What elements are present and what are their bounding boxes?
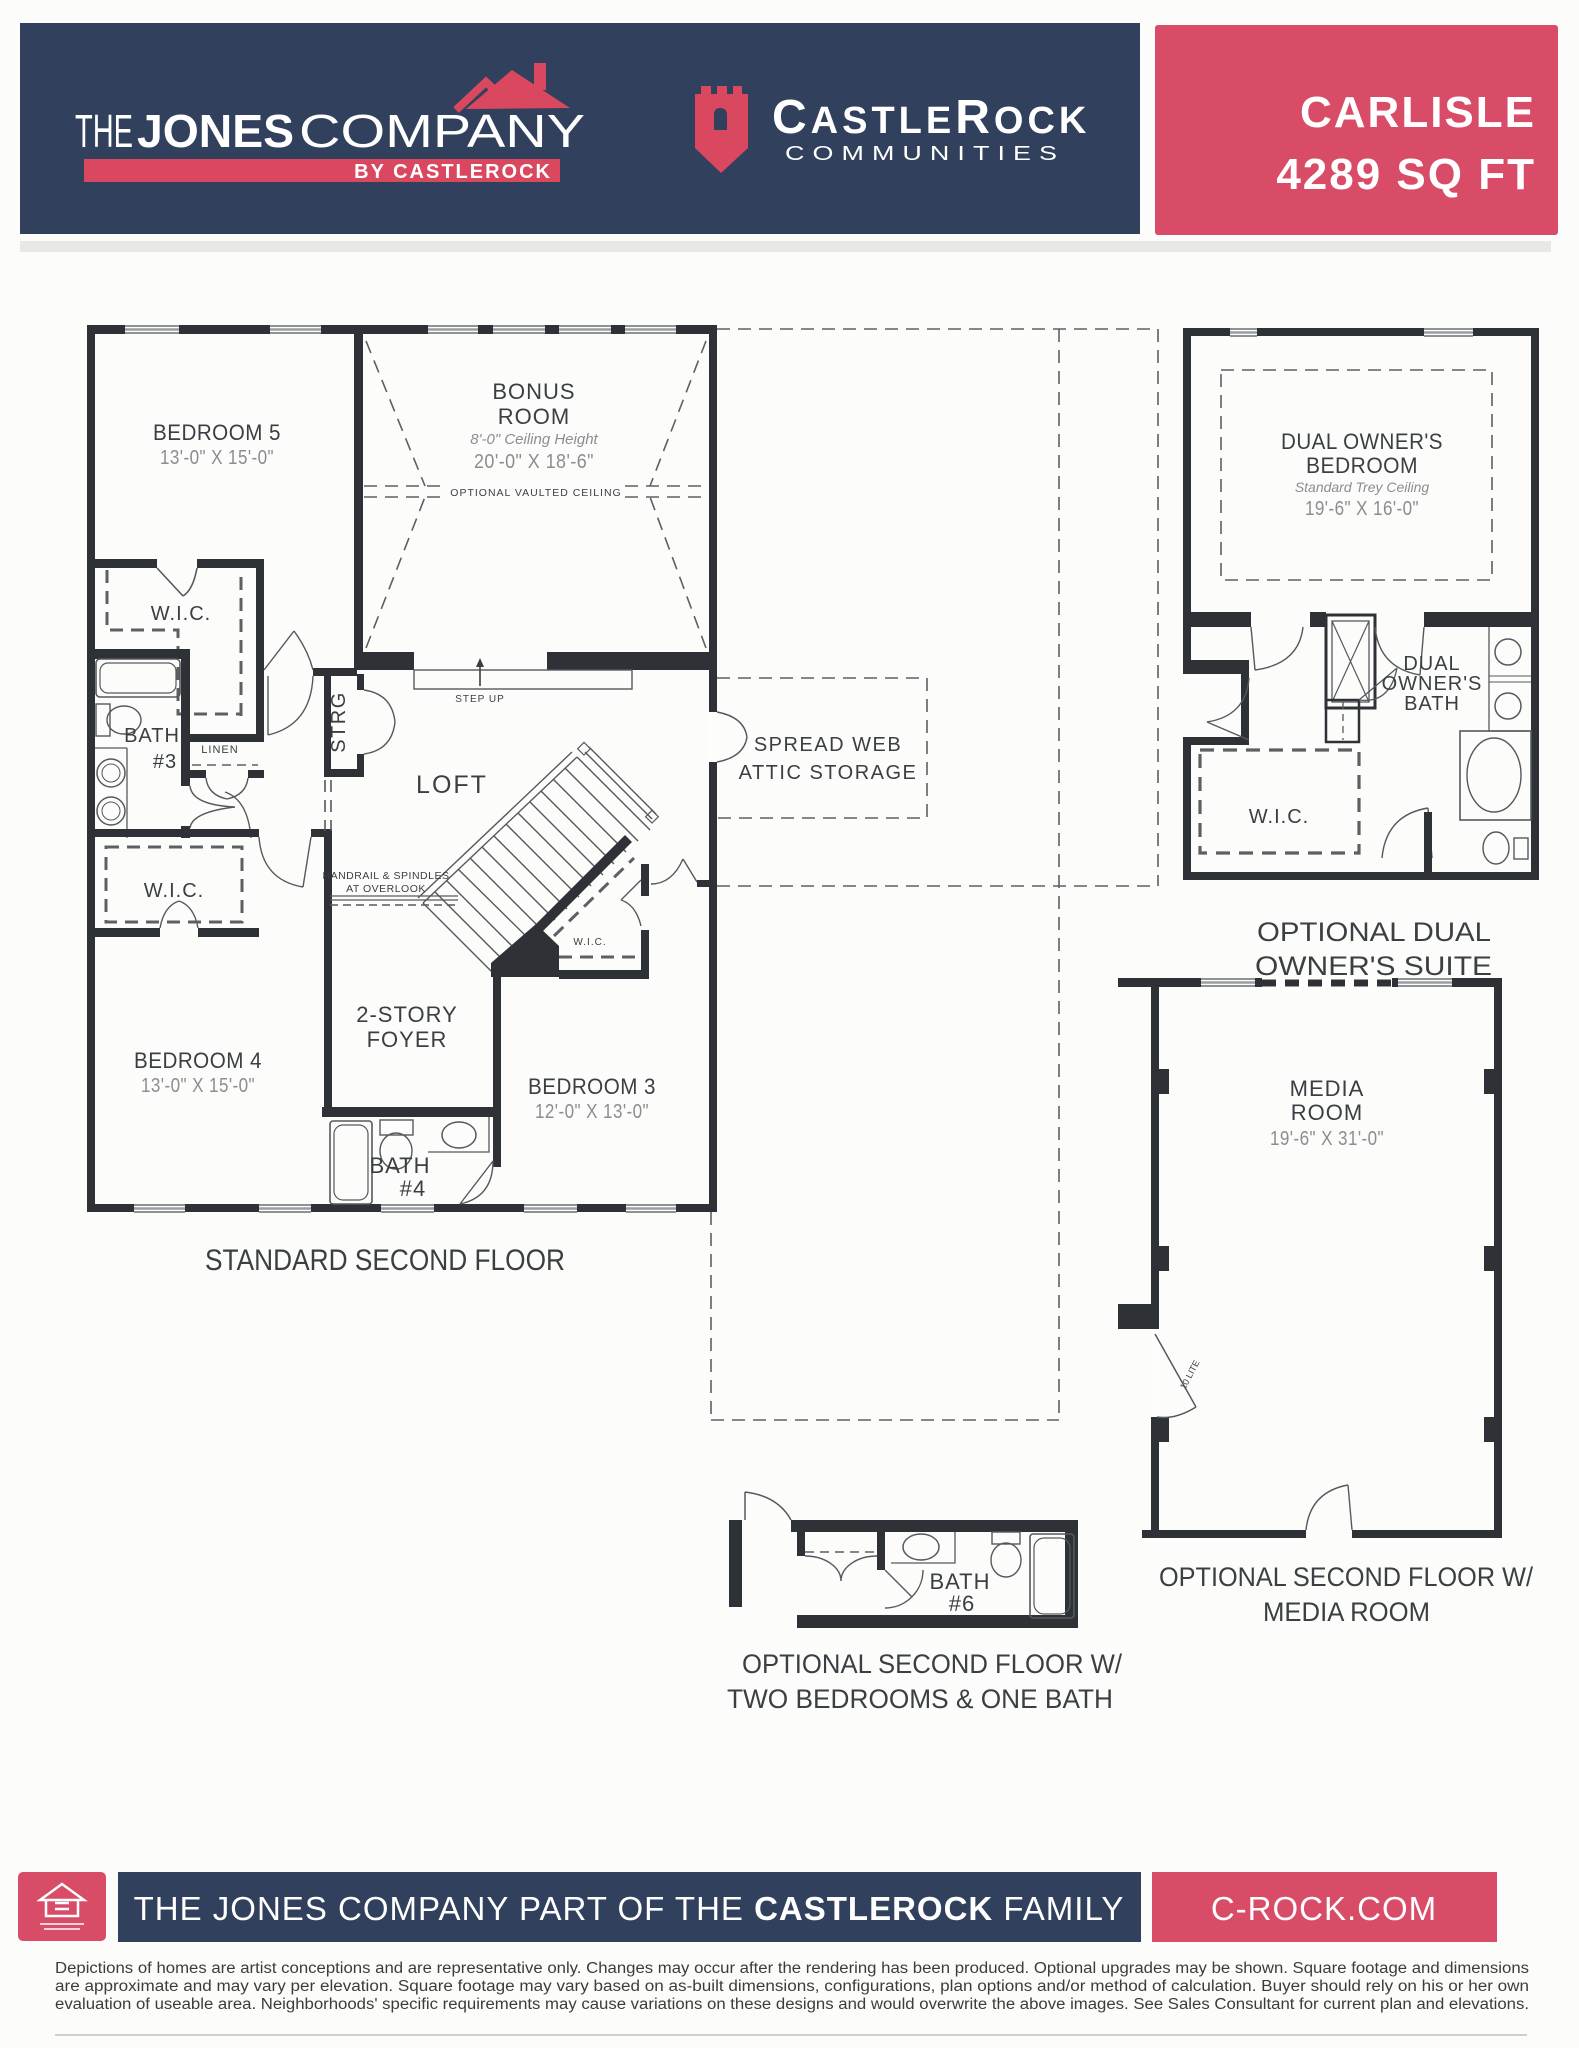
svg-text:are approximate and may vary p: are approximate and may vary per elevati… [55, 1978, 1529, 1995]
svg-text:BY CASTLEROCK: BY CASTLEROCK [354, 161, 552, 183]
svg-text:12'-0" X 13'-0": 12'-0" X 13'-0" [535, 1101, 649, 1123]
svg-text:STANDARD SECOND FLOOR: STANDARD SECOND FLOOR [205, 1244, 565, 1277]
svg-text:BEDROOM 5: BEDROOM 5 [153, 420, 281, 445]
svg-text:W.I.C.: W.I.C. [1249, 806, 1309, 828]
svg-text:BATH: BATH [369, 1153, 430, 1178]
svg-text:W.I.C.: W.I.C. [151, 603, 211, 625]
svg-text:BEDROOM 3: BEDROOM 3 [528, 1074, 656, 1099]
svg-text:2-STORY: 2-STORY [356, 1002, 458, 1027]
svg-text:evaluation of useable area. Ne: evaluation of useable area. Neighborhood… [55, 1996, 1529, 2013]
svg-text:#4: #4 [400, 1176, 426, 1201]
svg-text:#3: #3 [153, 751, 177, 773]
svg-text:ATTIC STORAGE: ATTIC STORAGE [739, 762, 918, 784]
svg-text:DUAL OWNER'S: DUAL OWNER'S [1281, 429, 1443, 454]
svg-text:BATH: BATH [124, 725, 180, 747]
svg-text:OPTIONAL SECOND FLOOR W/: OPTIONAL SECOND FLOOR W/ [742, 1649, 1122, 1679]
svg-text:19'-6" X 31'-0": 19'-6" X 31'-0" [1270, 1128, 1384, 1150]
svg-text:#6: #6 [949, 1591, 975, 1616]
svg-text:AT OVERLOOK: AT OVERLOOK [346, 883, 426, 895]
svg-text:HANDRAIL & SPINDLES: HANDRAIL & SPINDLES [323, 870, 450, 882]
svg-text:COMMUNITIES: COMMUNITIES [785, 143, 1065, 165]
svg-text:BATH: BATH [1404, 693, 1460, 715]
svg-text:20'-0" X 18'-6": 20'-0" X 18'-6" [474, 451, 594, 473]
svg-text:4289 SQ FT: 4289 SQ FT [1276, 150, 1536, 199]
svg-text:OPTIONAL DUAL: OPTIONAL DUAL [1257, 917, 1491, 947]
svg-text:ROOM: ROOM [1291, 1100, 1363, 1125]
svg-text:BEDROOM: BEDROOM [1306, 453, 1418, 478]
svg-text:STRG: STRG [328, 691, 350, 753]
svg-text:SPREAD WEB: SPREAD WEB [754, 734, 902, 756]
svg-text:OWNER'S: OWNER'S [1382, 673, 1483, 695]
svg-text:10 LITE: 10 LITE [1178, 1358, 1202, 1391]
svg-text:TWO BEDROOMS & ONE BATH: TWO BEDROOMS & ONE BATH [727, 1684, 1113, 1714]
svg-text:BEDROOM 4: BEDROOM 4 [134, 1048, 262, 1073]
svg-text:19'-6" X 16'-0": 19'-6" X 16'-0" [1305, 498, 1419, 520]
svg-text:ROOM: ROOM [498, 404, 570, 429]
svg-text:CARLISLE: CARLISLE [1300, 88, 1536, 137]
svg-text:OPTIONAL VAULTED CEILING: OPTIONAL VAULTED CEILING [450, 487, 621, 499]
svg-text:Standard Trey Ceiling: Standard Trey Ceiling [1295, 479, 1430, 495]
svg-text:COMPANY: COMPANY [299, 105, 585, 157]
svg-text:FOYER: FOYER [367, 1027, 448, 1052]
svg-text:W.I.C.: W.I.C. [144, 880, 204, 902]
svg-text:Depictions of homes are artist: Depictions of homes are artist conceptio… [55, 1960, 1529, 1977]
svg-text:DUAL: DUAL [1403, 653, 1460, 675]
svg-text:LINEN: LINEN [201, 744, 238, 756]
svg-text:LOFT: LOFT [416, 771, 488, 799]
svg-text:JONES: JONES [137, 105, 294, 157]
svg-text:MEDIA ROOM: MEDIA ROOM [1263, 1597, 1430, 1627]
svg-text:OPTIONAL SECOND FLOOR W/: OPTIONAL SECOND FLOOR W/ [1159, 1562, 1533, 1592]
svg-text:THE JONES COMPANY PART OF THE: THE JONES COMPANY PART OF THE CASTLEROCK… [134, 1890, 1125, 1927]
svg-text:THE: THE [75, 105, 133, 157]
svg-text:8'-0" Ceiling Height: 8'-0" Ceiling Height [470, 431, 598, 448]
svg-text:MEDIA: MEDIA [1290, 1076, 1365, 1101]
svg-text:13'-0" X 15'-0": 13'-0" X 15'-0" [141, 1075, 255, 1097]
svg-text:C-ROCK.COM: C-ROCK.COM [1211, 1890, 1437, 1927]
svg-text:BONUS: BONUS [492, 379, 575, 404]
svg-text:OWNER'S SUITE: OWNER'S SUITE [1255, 951, 1492, 981]
svg-text:W.I.C.: W.I.C. [573, 937, 606, 948]
svg-text:STEP UP: STEP UP [455, 694, 505, 705]
svg-text:13'-0" X 15'-0": 13'-0" X 15'-0" [160, 447, 274, 469]
